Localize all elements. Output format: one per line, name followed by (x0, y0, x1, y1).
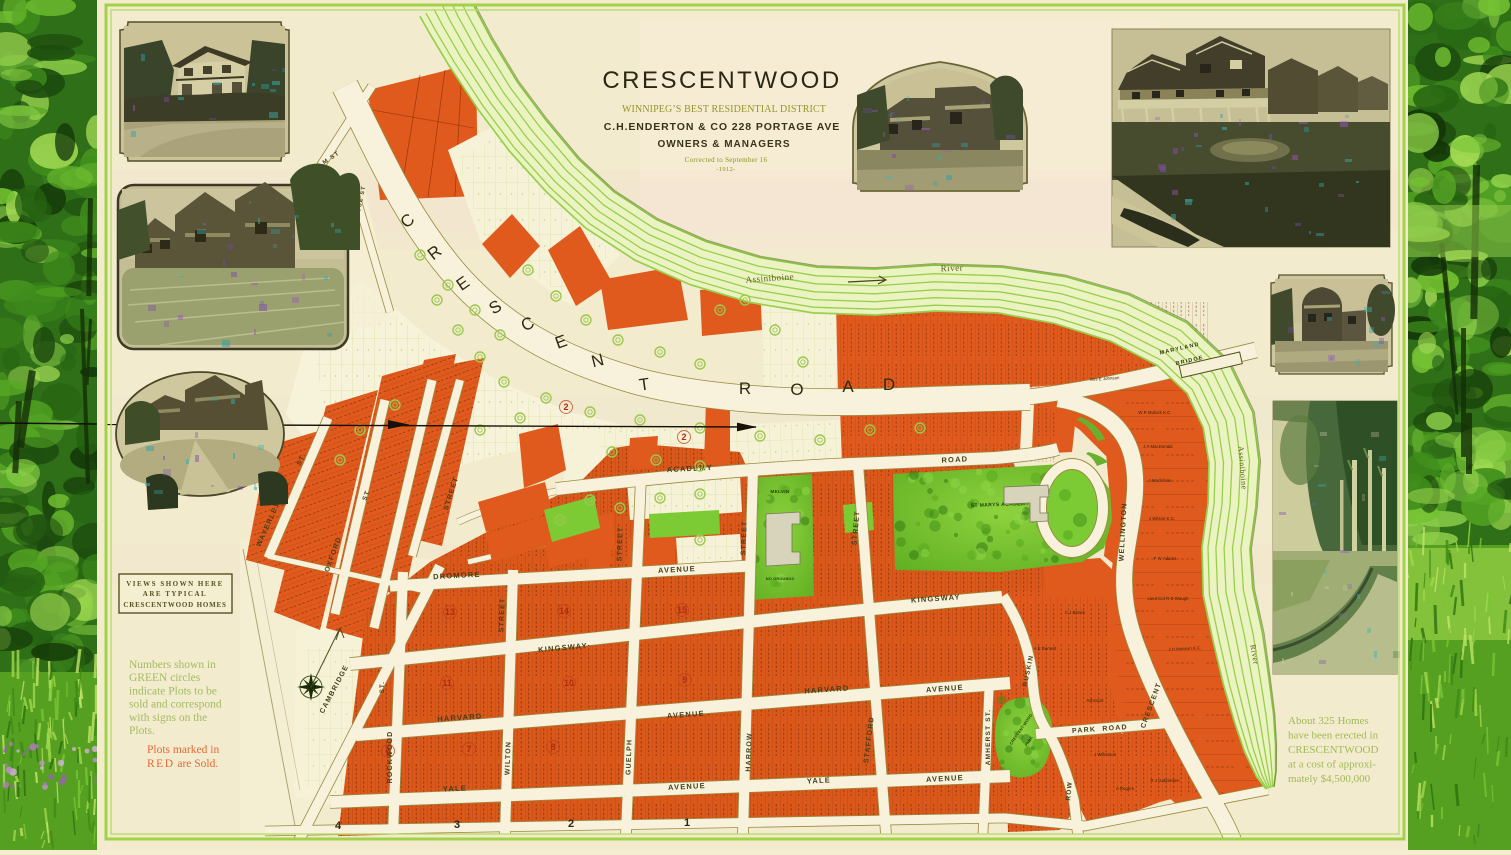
svg-text:STREET: STREET (498, 597, 506, 632)
svg-text:NO GROUNDS: NO GROUNDS (766, 577, 794, 581)
svg-text:STREET: STREET (740, 520, 748, 555)
svg-text:J Wilson K.C.: J Wilson K.C. (1149, 516, 1175, 521)
svg-text:F W Adams: F W Adams (1154, 556, 1177, 561)
svg-text:STREET: STREET (616, 526, 624, 561)
svg-text:-1912-: -1912- (716, 166, 735, 173)
svg-text:RED are Sold.: RED are Sold. (147, 758, 218, 770)
svg-text:Plots.: Plots. (129, 725, 155, 737)
svg-text:D: D (883, 375, 895, 394)
svg-text:Lieut Col R D Waugh: Lieut Col R D Waugh (1147, 596, 1189, 601)
svg-text:with signs on the: with signs on the (129, 712, 207, 724)
svg-text:A: A (842, 377, 854, 396)
svg-text:1: 1 (684, 817, 690, 829)
svg-text:at a cost of approxi-: at a cost of approxi- (1288, 759, 1376, 771)
svg-text:River: River (940, 263, 963, 274)
svg-text:YALE: YALE (807, 775, 832, 785)
svg-text:14: 14 (559, 606, 569, 616)
svg-text:Ashcourt: Ashcourt (1086, 698, 1104, 703)
svg-text:HARROW: HARROW (745, 732, 753, 772)
svg-text:GREEN circles: GREEN circles (129, 672, 201, 684)
svg-text:2: 2 (681, 432, 686, 442)
svg-text:About 325 Homes: About 325 Homes (1288, 715, 1369, 727)
svg-text:C J Brown: C J Brown (1065, 610, 1086, 615)
svg-text:A E Burnett: A E Burnett (1034, 646, 1057, 651)
svg-text:OWNERS & MANAGERS: OWNERS & MANAGERS (657, 139, 790, 150)
svg-text:ST.: ST. (380, 681, 386, 693)
svg-text:have been erected in: have been erected in (1288, 730, 1379, 742)
svg-text:J A MacDonald: J A MacDonald (1143, 444, 1173, 449)
svg-text:3: 3 (454, 819, 460, 831)
svg-text:R: R (739, 379, 751, 398)
svg-text:YALE: YALE (443, 783, 468, 793)
svg-text:CRESCENTWOOD HOMES: CRESCENTWOOD HOMES (123, 601, 226, 609)
svg-text:9: 9 (682, 675, 687, 685)
svg-text:Numbers shown in: Numbers shown in (129, 659, 216, 671)
svg-text:WINNIPEG’S BEST RESIDENTIAL DI: WINNIPEG’S BEST RESIDENTIAL DISTRICT (622, 104, 826, 115)
svg-text:CRESCENTWOOD: CRESCENTWOOD (602, 67, 841, 94)
svg-text:A Rogers: A Rogers (1116, 786, 1134, 791)
svg-text:ROAD: ROAD (941, 454, 968, 464)
svg-text:Corrected to September 16: Corrected to September 16 (685, 156, 768, 164)
svg-text:WILTON: WILTON (504, 741, 512, 775)
svg-text:4: 4 (335, 820, 342, 832)
svg-text:AMHERST ST.: AMHERST ST. (985, 709, 992, 766)
svg-text:VIEWS SHOWN HERE: VIEWS SHOWN HERE (126, 580, 224, 588)
svg-text:7: 7 (466, 744, 471, 754)
svg-text:2: 2 (568, 818, 574, 830)
svg-text:mately $4,500,000: mately $4,500,000 (1288, 773, 1371, 785)
svg-text:MELVIN: MELVIN (770, 489, 789, 494)
svg-text:15: 15 (677, 605, 687, 615)
svg-text:10: 10 (564, 678, 574, 688)
svg-text:sold and correspond: sold and correspond (129, 699, 222, 711)
svg-text:O: O (790, 380, 803, 399)
svg-text:6: 6 (385, 746, 390, 756)
svg-text:2: 2 (563, 402, 568, 412)
svg-text:J Mackilson: J Mackilson (1149, 478, 1173, 483)
svg-text:J Wilkinson: J Wilkinson (1094, 752, 1117, 757)
svg-text:indicate Plots to be: indicate Plots to be (129, 685, 217, 697)
svg-text:11: 11 (442, 678, 452, 688)
svg-text:ARE TYPICAL: ARE TYPICAL (143, 590, 207, 598)
svg-text:8: 8 (550, 742, 555, 752)
svg-text:Plots marked in: Plots marked in (147, 744, 219, 756)
svg-text:C.H.ENDERTON & CO 228 PORTAGE: C.H.ENDERTON & CO 228 PORTAGE AVE (604, 121, 840, 133)
svg-text:13: 13 (445, 607, 455, 617)
svg-text:R J Gabrielsen: R J Gabrielsen (1150, 778, 1180, 783)
svg-text:CRESCENTWOOD: CRESCENTWOOD (1288, 744, 1379, 756)
svg-text:GUELPH: GUELPH (625, 739, 633, 776)
svg-text:W R Mulock K.C.: W R Mulock K.C. (1138, 410, 1171, 415)
